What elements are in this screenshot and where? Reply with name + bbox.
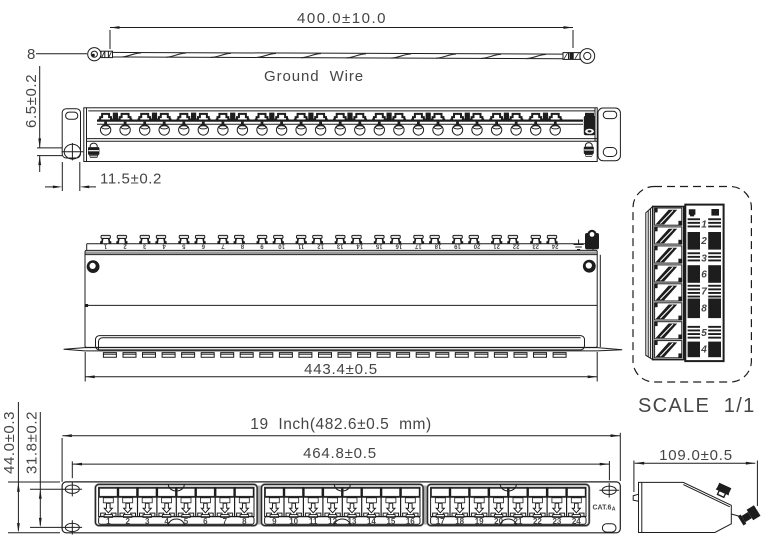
svg-text:109.0±0.5: 109.0±0.5 [659,447,733,464]
svg-text:10: 10 [278,242,285,248]
svg-text:13: 13 [336,242,343,248]
svg-text:18: 18 [434,242,441,248]
svg-text:SCALE 1/1: SCALE 1/1 [638,395,756,417]
svg-text:Ground Wire: Ground Wire [264,68,364,85]
svg-text:5: 5 [701,328,707,339]
svg-text:17: 17 [414,242,421,248]
svg-text:12: 12 [317,242,324,248]
svg-text:3: 3 [701,253,707,264]
svg-text:24: 24 [551,242,558,248]
svg-text:11: 11 [297,242,304,248]
svg-text:7: 7 [701,286,707,297]
svg-text:19: 19 [454,242,461,248]
svg-text:15: 15 [375,242,382,248]
svg-text:8: 8 [701,304,707,315]
svg-text:20: 20 [473,242,480,248]
svg-text:23: 23 [532,242,539,248]
svg-text:4: 4 [700,345,707,356]
svg-text:CAT.6: CAT.6 [593,505,612,512]
svg-text:400.0±10.0: 400.0±10.0 [297,10,387,27]
svg-text:14: 14 [356,242,363,248]
svg-text:443.4±0.5: 443.4±0.5 [304,361,378,378]
svg-text:1: 1 [701,220,707,231]
svg-text:19 Inch(482.6±0.5 mm): 19 Inch(482.6±0.5 mm) [250,416,431,433]
svg-text:6: 6 [701,269,707,280]
svg-text:2: 2 [700,236,707,247]
svg-text:22: 22 [512,242,519,248]
svg-text:11.5±0.2: 11.5±0.2 [100,171,162,188]
svg-text:6.5±0.2: 6.5±0.2 [23,74,40,128]
svg-text:16: 16 [395,242,402,248]
svg-text:44.0±0.3: 44.0±0.3 [1,411,18,474]
svg-text:21: 21 [493,242,500,248]
svg-text:8: 8 [27,46,35,63]
svg-text:A: A [612,506,616,512]
svg-text:31.8±0.2: 31.8±0.2 [24,411,41,474]
svg-text:464.8±0.5: 464.8±0.5 [303,445,377,462]
